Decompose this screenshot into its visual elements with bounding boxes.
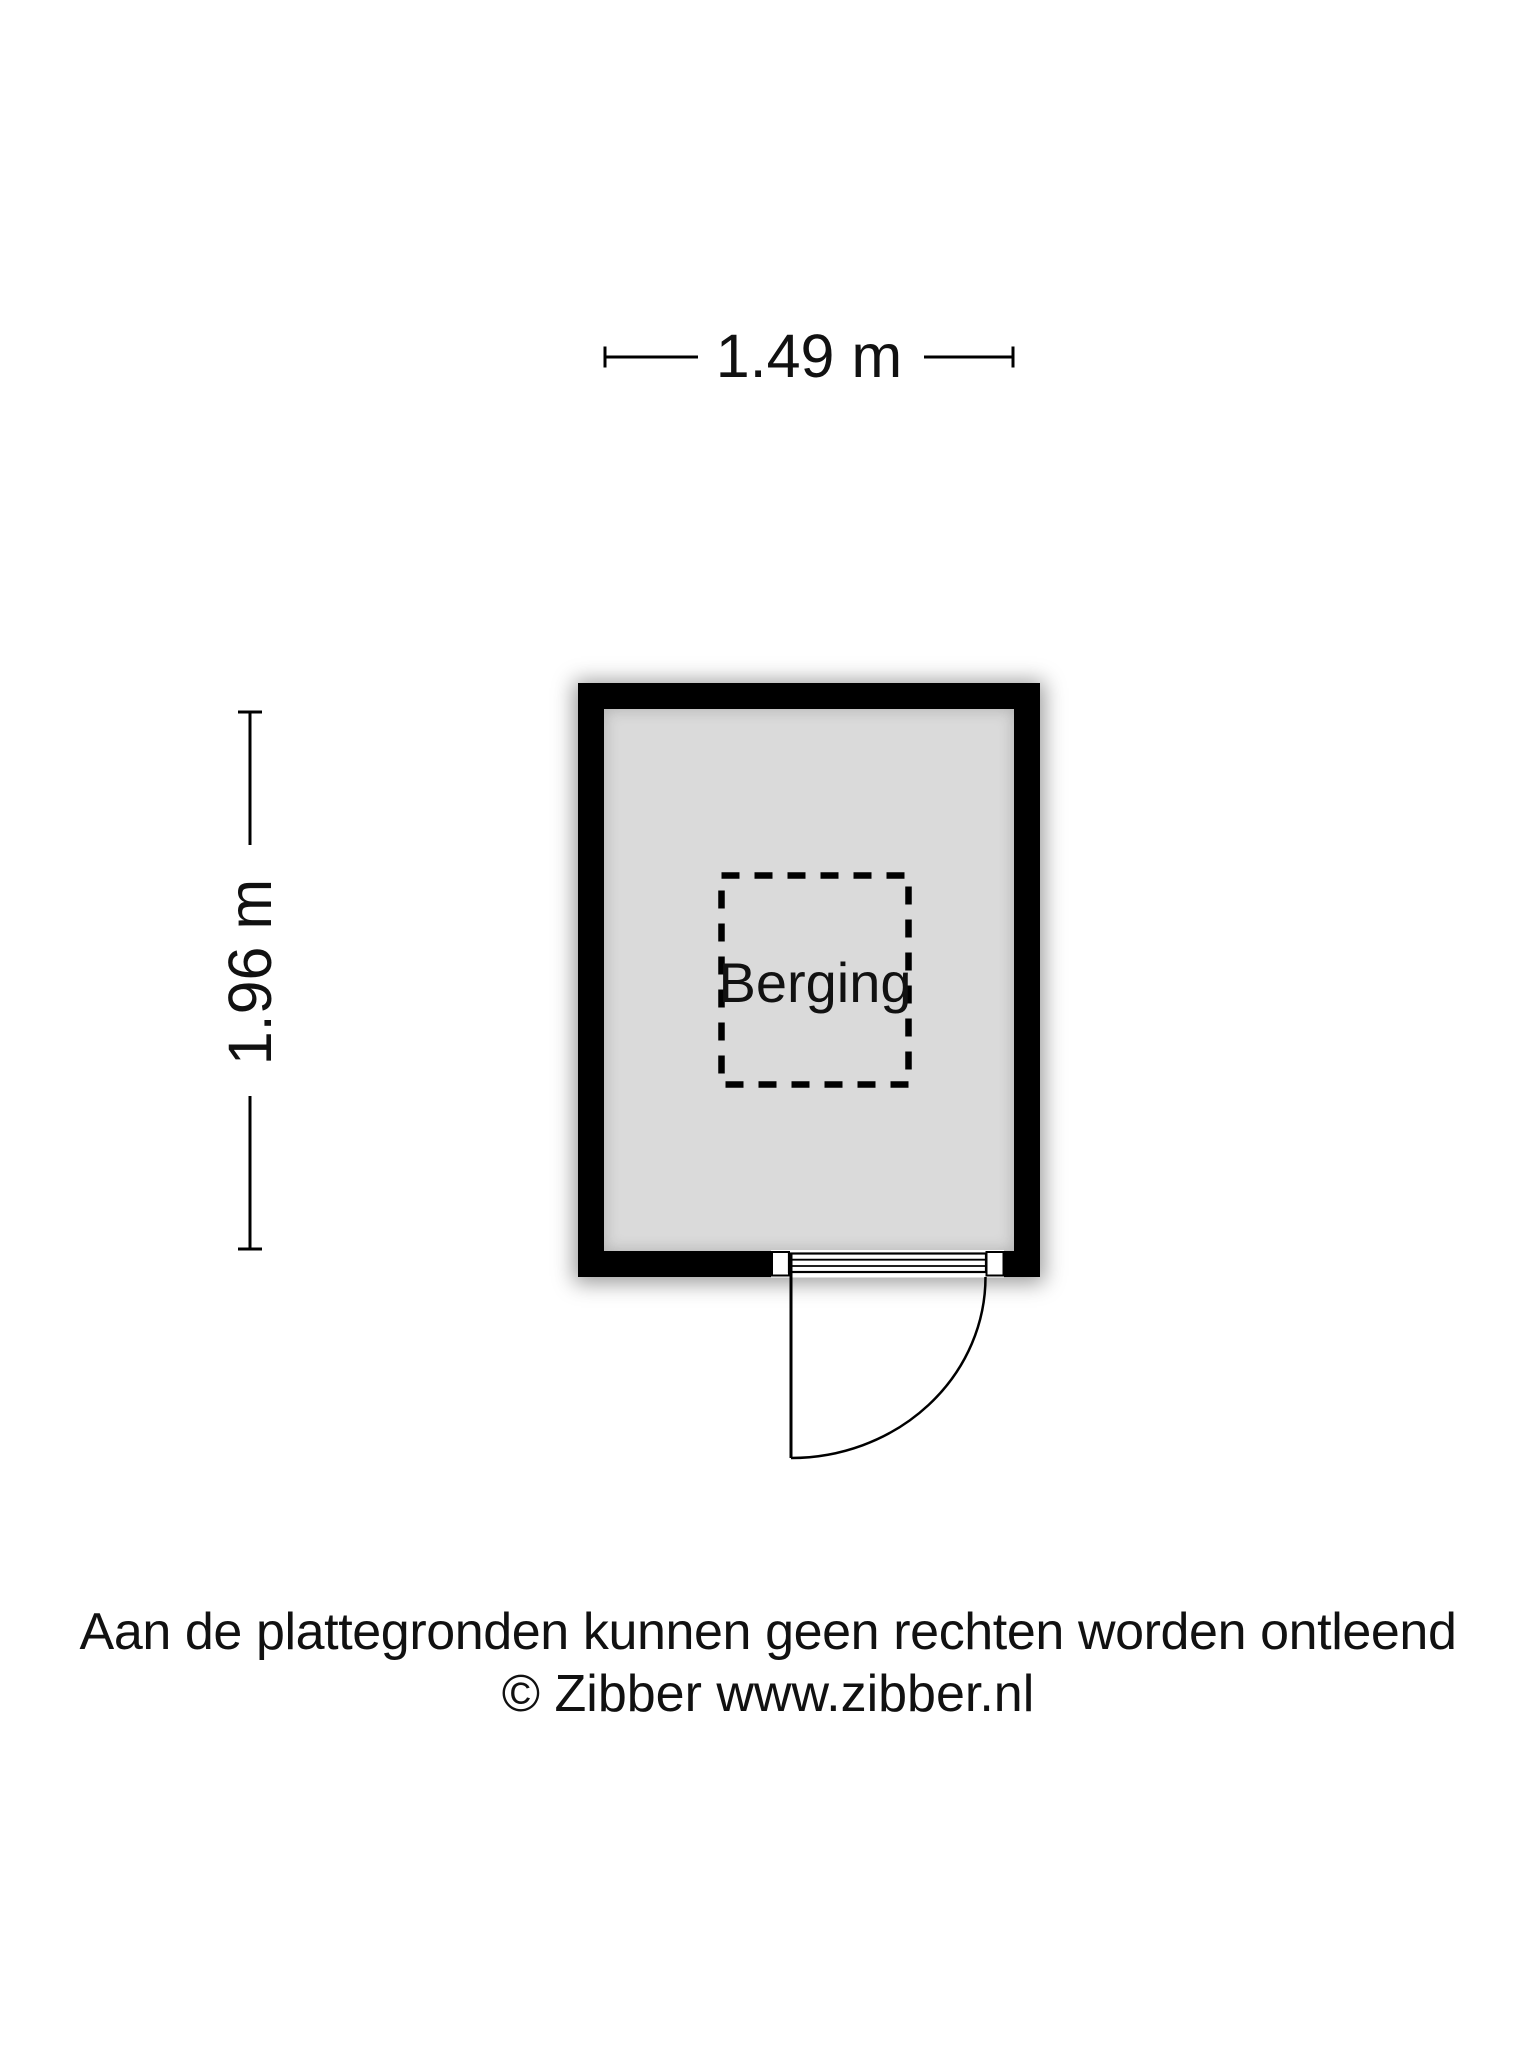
disclaimer-text: Aan de plattegronden kunnen geen rechten… [0, 1601, 1536, 1663]
footer: Aan de plattegronden kunnen geen rechten… [0, 1601, 1536, 1725]
copyright-text: © Zibber www.zibber.nl [0, 1663, 1536, 1725]
room-label: Berging [702, 949, 928, 1017]
height-dimension-label: 1.96 m [214, 821, 286, 1123]
width-dimension-label: 1.49 m [659, 320, 959, 392]
floor-plan-canvas: 1.49 m 1.96 m Berging Aan de plattegrond… [0, 0, 1536, 2048]
door-swing-arc [791, 1277, 986, 1458]
door [771, 1250, 1004, 1458]
